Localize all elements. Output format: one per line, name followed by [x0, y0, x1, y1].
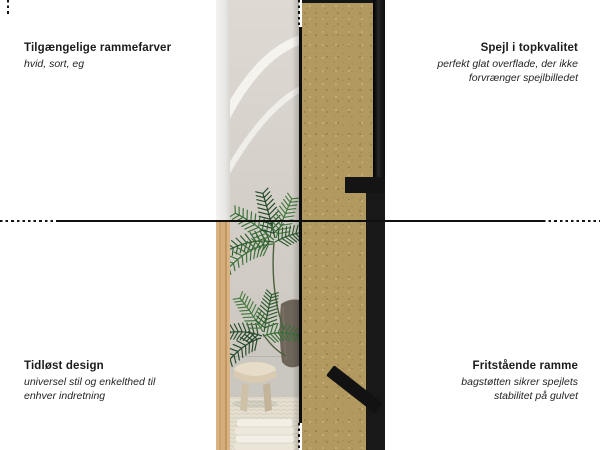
- product-photo-mirror: [216, 0, 385, 450]
- annotation-top-right: Spejl i topkvalitet perfekt glat overfla…: [416, 42, 578, 86]
- annotation-subtitle: universel stil og enkelthed til enhver i…: [24, 376, 176, 404]
- annotation-subtitle: hvid, sort, eg: [24, 58, 224, 72]
- annotation-bottom-left: Tidløst design universel stil og enkelth…: [24, 360, 176, 404]
- horizontal-dotted-line-left: [0, 220, 58, 222]
- annotation-top-left: Tilgængelige rammefarver hvid, sort, eg: [24, 42, 224, 72]
- annotation-title: Tilgængelige rammefarver: [24, 42, 224, 54]
- stacked-towels: [234, 419, 295, 450]
- mirror-reflection-scene: [230, 0, 299, 450]
- mirror-edge-shade: [292, 0, 299, 450]
- horizontal-solid-line: [58, 220, 543, 222]
- annotation-bottom-right: Fritstående ramme bagstøtten sikrer spej…: [438, 360, 578, 404]
- corner-dotted-mark: [7, 0, 9, 16]
- support-hinge-bar: [345, 177, 385, 193]
- annotation-title: Tidløst design: [24, 360, 176, 372]
- product-infographic: Tilgængelige rammefarver hvid, sort, eg …: [0, 0, 600, 450]
- horizontal-dotted-line-right: [543, 220, 600, 222]
- vertical-dotted-line-top: [298, 0, 300, 27]
- mdf-top-edge: [302, 0, 373, 3]
- vertical-dotted-line-bottom: [298, 423, 300, 450]
- annotation-subtitle: perfekt glat overflade, der ikke forvræn…: [416, 58, 578, 86]
- annotation-title: Fritstående ramme: [438, 360, 578, 372]
- annotation-title: Spejl i topkvalitet: [416, 42, 578, 54]
- frame-sample-oak: [216, 221, 230, 450]
- annotation-subtitle: bagstøtten sikrer spejlets stabilitet på…: [438, 376, 578, 404]
- frame-sample-white: [216, 0, 230, 221]
